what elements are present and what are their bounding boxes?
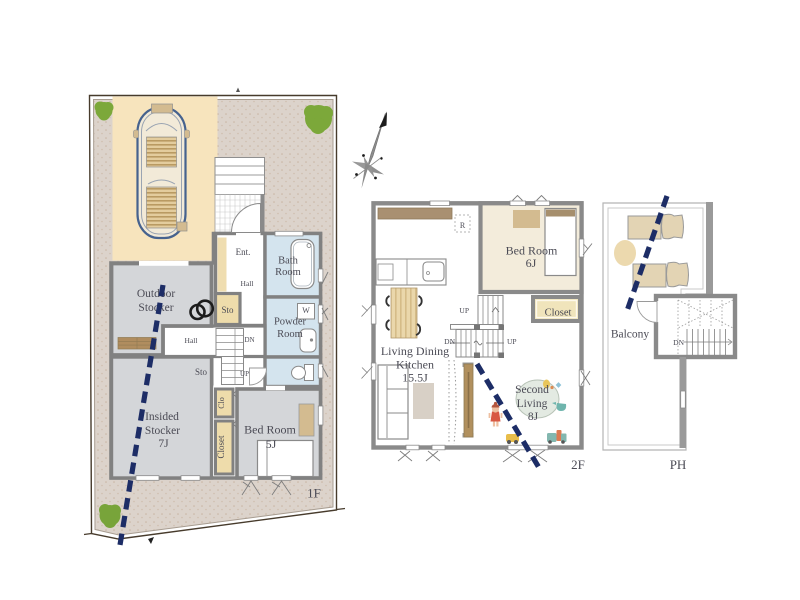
svg-text:UP: UP bbox=[459, 306, 469, 315]
svg-text:UP: UP bbox=[507, 337, 517, 346]
svg-text:Hall: Hall bbox=[185, 336, 198, 345]
svg-text:2F: 2F bbox=[571, 457, 585, 472]
svg-text:Second: Second bbox=[515, 384, 549, 396]
svg-text:Balcony: Balcony bbox=[611, 329, 650, 341]
svg-text:Kitchen: Kitchen bbox=[396, 358, 434, 372]
svg-text:PH: PH bbox=[670, 457, 687, 472]
svg-text:15.5J: 15.5J bbox=[402, 371, 428, 385]
svg-text:Insided: Insided bbox=[145, 411, 179, 423]
svg-text:Room: Room bbox=[275, 267, 301, 278]
svg-text:Powder: Powder bbox=[274, 317, 307, 328]
svg-text:5J: 5J bbox=[266, 437, 277, 451]
svg-text:Bed Room: Bed Room bbox=[244, 423, 296, 437]
svg-text:DN: DN bbox=[245, 336, 255, 344]
svg-text:R: R bbox=[460, 221, 466, 230]
svg-text:Ent.: Ent. bbox=[236, 247, 251, 257]
svg-text:Hall: Hall bbox=[241, 279, 254, 288]
svg-text:6J: 6J bbox=[526, 256, 537, 270]
svg-text:1F: 1F bbox=[307, 486, 321, 501]
svg-text:Stocker: Stocker bbox=[145, 425, 180, 437]
svg-text:W: W bbox=[302, 306, 310, 315]
svg-text:Closet: Closet bbox=[216, 435, 226, 459]
svg-text:7J: 7J bbox=[158, 438, 169, 450]
svg-text:Closet: Closet bbox=[545, 308, 572, 319]
svg-text:Living: Living bbox=[517, 398, 548, 410]
svg-text:Room: Room bbox=[277, 329, 303, 340]
svg-text:Clo: Clo bbox=[217, 397, 226, 409]
svg-text:Sto: Sto bbox=[195, 367, 208, 377]
svg-text:UP: UP bbox=[240, 370, 249, 378]
svg-text:Bath: Bath bbox=[278, 256, 299, 267]
svg-text:8J: 8J bbox=[528, 411, 539, 423]
svg-text:Sto: Sto bbox=[221, 305, 234, 315]
svg-text:Living Dining: Living Dining bbox=[381, 344, 449, 358]
svg-text:Outdoor: Outdoor bbox=[137, 288, 176, 300]
svg-text:DN: DN bbox=[673, 338, 684, 347]
